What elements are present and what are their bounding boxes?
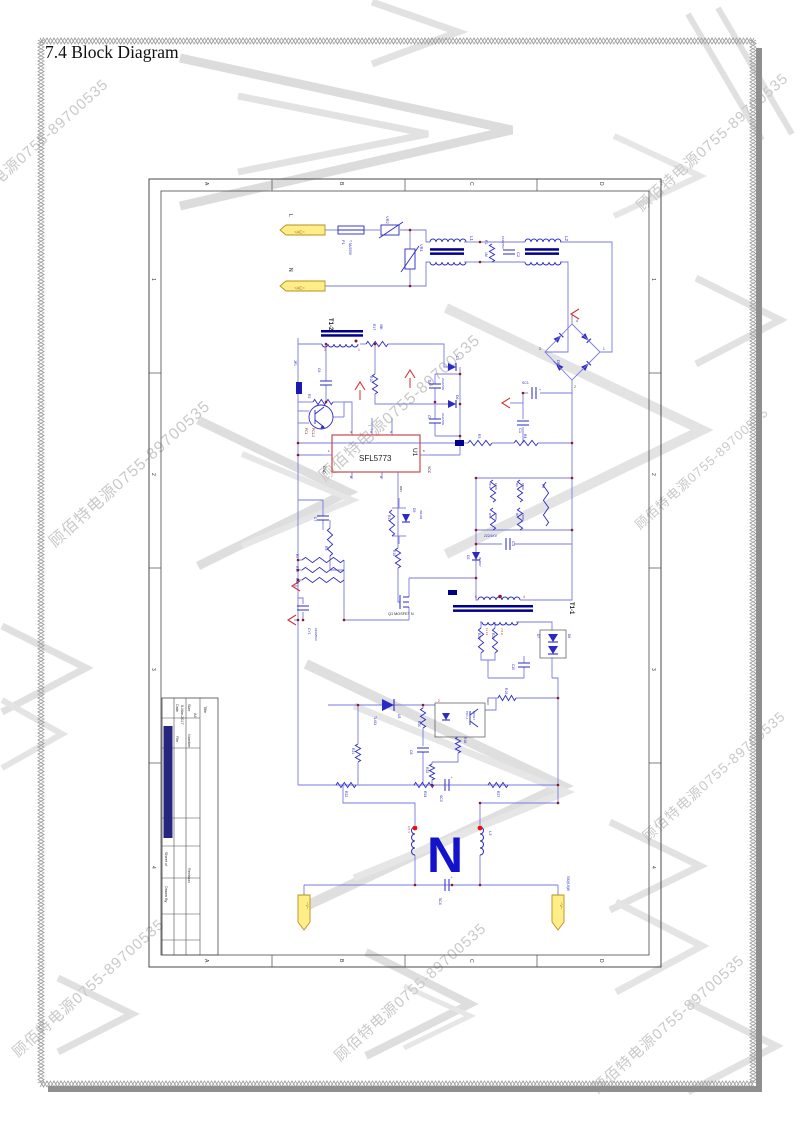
- label-l1: L1: [469, 236, 474, 242]
- title-block-field: Size: [187, 704, 191, 711]
- label-d2-value: IN4007: [478, 557, 482, 567]
- zone-column-label: D: [598, 182, 604, 186]
- label-r19: R19: [504, 688, 508, 694]
- section-title: 7.4 Block Diagram: [45, 42, 179, 63]
- power-port-arrow-icon: [405, 370, 415, 378]
- zone-column-label: C: [468, 182, 474, 186]
- label-u1-part: SFL5773: [359, 454, 392, 463]
- label-v-pos: ~V~: [559, 902, 564, 910]
- zone-column-label: B: [338, 959, 344, 963]
- schematic-canvas: AABBCCDD11223344TitleSizeA4NumberRevisio…: [148, 178, 662, 968]
- label-c2-value: 104/275V: [501, 236, 505, 249]
- zone-column-label: D: [598, 959, 604, 963]
- label-c3-value: 222/1KV: [484, 534, 498, 538]
- title-block-field: Drawn By: [164, 886, 168, 903]
- schematic-labels: L~AC~N~AC~F1T 3A/250VVR2VR1L1R11M104/275…: [287, 214, 605, 910]
- label-t1-1: T1-1: [568, 602, 574, 615]
- label-u1-vcc: VCC: [427, 466, 431, 474]
- label-r21: R21: [351, 748, 355, 754]
- label-pc1-1-pin1: 1: [487, 699, 489, 703]
- label-r5: R5: [295, 554, 299, 558]
- label-c4: C4: [427, 380, 431, 384]
- label-r12-value: 100K: [494, 483, 498, 490]
- mosfet-q1: [400, 595, 409, 609]
- label-c2: C2: [516, 252, 521, 258]
- label-r20: R20: [417, 721, 421, 727]
- label-ac-term-2: ~AC~: [294, 286, 305, 291]
- label-cy1-value: 222/250V: [314, 628, 318, 641]
- v-neg-terminal: [298, 895, 310, 930]
- label-r26: R26: [477, 633, 481, 639]
- label-r7: R7: [515, 513, 519, 517]
- label-vr2: VR2: [385, 216, 390, 225]
- zone-row-label: 4: [650, 866, 656, 869]
- label-r14: R14: [488, 513, 492, 519]
- label-line-l: L: [287, 214, 293, 217]
- label-r11: R11: [387, 515, 391, 521]
- label-sc4-plus: +: [451, 875, 453, 879]
- label-r1-value: 1M: [484, 252, 488, 257]
- title-block-field: Date: [175, 704, 179, 712]
- label-sc4: SC4: [438, 898, 442, 905]
- label-r25: R25: [491, 633, 495, 639]
- label-r7-value: 150K: [521, 513, 525, 520]
- label-r3: R3: [477, 434, 481, 438]
- zone-row-label: 2: [650, 473, 656, 476]
- label-t1-1-sec1: 11 12: [485, 628, 489, 636]
- watermark-text: 顾佰特电源0755-89700535: [0, 76, 112, 221]
- optocoupler-pc1-2: [309, 405, 333, 429]
- zone-column-label: A: [203, 182, 209, 186]
- file-path-highlight: [164, 726, 173, 838]
- label-q1: Q1 MOSFET N: [388, 612, 414, 616]
- label-t1-1-pin4: 4: [523, 595, 525, 599]
- label-r23: R23: [425, 767, 429, 773]
- label-r2: R2: [307, 394, 311, 398]
- label-vr1: VR1: [419, 244, 424, 253]
- label-c8: C8: [409, 750, 413, 754]
- sheet-frame: AABBCCDD11223344: [149, 179, 661, 967]
- title-block-field: Sheet of: [164, 852, 168, 867]
- zone-column-label: C: [468, 959, 474, 963]
- label-d7: D7: [536, 634, 540, 638]
- label-d5-value: IN4148: [419, 510, 423, 519]
- zone-column-label: B: [338, 182, 344, 186]
- label-c6: C6: [317, 368, 321, 372]
- title-block-field: Revision: [187, 868, 191, 883]
- label-tl431: TL431: [373, 716, 377, 725]
- label-d6: D6: [455, 395, 459, 399]
- label-db1-pin4: 4: [576, 319, 578, 323]
- label-l2: L2: [564, 236, 569, 242]
- label-pc817: PC817: [472, 711, 476, 721]
- label-r24: R24: [423, 791, 427, 797]
- label-c1: C1: [518, 428, 523, 434]
- label-c4-plus: +: [439, 386, 441, 390]
- label-pc1-1: PC1-1: [465, 711, 469, 720]
- label-r8: R8: [541, 484, 545, 488]
- label-u1-gnd: GND: [322, 466, 326, 474]
- zone-row-label: 2: [150, 473, 156, 476]
- label-out-pins: 6 5 4: [407, 826, 411, 833]
- label-f1-value: T 3A/250V: [348, 240, 352, 256]
- label-d2: D2: [466, 555, 470, 559]
- junction-dots: [297, 229, 574, 887]
- title-block-field: File: [175, 736, 179, 742]
- zone-row-label: 3: [650, 668, 656, 671]
- label-t1-1-pin6: 6: [475, 595, 477, 599]
- zone-column-label: A: [203, 959, 209, 963]
- label-r4: R4: [523, 434, 527, 438]
- zone-row-label: 4: [150, 866, 156, 869]
- label-v-neg: ~V~: [305, 902, 310, 910]
- label-db1-pin1: 1: [603, 347, 605, 351]
- title-block-field: 5-Mar-2017: [180, 705, 184, 725]
- label-r1: R1: [484, 240, 488, 244]
- label-d8: D8: [567, 634, 571, 638]
- label-pc1-2: PC1-2: [311, 428, 315, 437]
- label-logo-n: N: [427, 827, 463, 883]
- title-block: TitleSizeA4NumberRevisionDate5-Mar-2017F…: [162, 698, 218, 955]
- label-c3: C3: [511, 541, 516, 547]
- label-r18: R18: [463, 737, 467, 743]
- jp1-connector: [296, 382, 302, 394]
- label-r17: R17: [372, 324, 376, 330]
- label-sc3-plus: +: [451, 775, 453, 779]
- label-r12: R12: [488, 483, 492, 489]
- chevron-watermark-icon: [372, 2, 458, 64]
- label-r16: R16: [295, 578, 299, 584]
- label-r15: R15: [392, 550, 396, 556]
- label-d1: D1: [455, 356, 459, 360]
- document-page: 顾佰特电源0755-89700535顾佰特电源0755-89700535顾佰特电…: [0, 0, 800, 1132]
- label-r10: R10: [369, 376, 373, 382]
- label-u1: U1: [411, 448, 418, 457]
- zone-row-label: 1: [150, 278, 156, 281]
- label-ac-term-1: ~AC~: [294, 230, 305, 235]
- label-t1-2: T1-2: [327, 318, 333, 331]
- zone-row-label: 3: [150, 668, 156, 671]
- label-sc1-plus: +: [539, 388, 541, 392]
- label-r22: R22: [344, 791, 348, 797]
- label-c10: C10: [511, 664, 515, 670]
- label-u3: U3: [397, 714, 401, 718]
- label-r6-value: 150K: [521, 483, 525, 490]
- label-c5-plus: +: [439, 421, 441, 425]
- label-u1-pin5: 5: [423, 449, 425, 453]
- label-cy1: CY1: [307, 628, 311, 635]
- label-v-pos-value: 500(6.8)W: [566, 876, 570, 891]
- label-c7: C7: [313, 517, 317, 521]
- v-pos-terminal: [552, 895, 564, 930]
- label-r6: R6: [515, 483, 519, 487]
- label-r27: R27: [496, 791, 500, 797]
- label-t1-2-pin3: 3: [324, 348, 326, 352]
- power-port-arrow-icon: [502, 398, 510, 408]
- label-c4-value: 22uF/50V: [441, 378, 445, 390]
- label-r14-value: 300K: [494, 513, 498, 520]
- label-t1-2-pin1: 1: [358, 348, 360, 352]
- label-t1-1-sec2: 7 8 9: [500, 628, 504, 635]
- label-jp1: JP1: [293, 360, 297, 366]
- label-f1: F1: [341, 240, 346, 245]
- power-port-arrow-icon: [355, 382, 365, 390]
- label-line-n: N: [287, 268, 293, 272]
- label-u1-drv: DRV: [399, 486, 403, 492]
- label-c5: C5: [427, 415, 431, 419]
- label-l3: L3: [488, 831, 493, 836]
- label-sc1: SC1: [522, 381, 529, 385]
- title-block-field: Number: [187, 734, 191, 748]
- label-sc3: SC3: [439, 795, 443, 802]
- title-block-field: A4: [193, 713, 197, 718]
- label-pc1: PC1: [304, 428, 308, 434]
- label-db1-pin2: 2: [574, 385, 576, 389]
- label-pc1-1-pin2: 2: [438, 699, 440, 703]
- label-c5-value: 22uF/50V: [441, 413, 445, 425]
- title-block-field: Title: [203, 706, 207, 713]
- label-r9: R9: [324, 546, 328, 550]
- chevron-watermark-icon: [696, 278, 780, 364]
- label-r17-value: 98K: [379, 324, 383, 331]
- label-u1-pin1: 1: [328, 449, 330, 453]
- label-db1: DB1: [556, 360, 561, 369]
- chevron-watermark-icon: [688, 1002, 776, 1092]
- zone-row-label: 1: [650, 278, 656, 281]
- label-r13: R13: [295, 566, 299, 572]
- label-d5: D5: [412, 508, 416, 512]
- label-db1-pin3: 3: [539, 347, 541, 351]
- schematic-wires: [294, 230, 612, 895]
